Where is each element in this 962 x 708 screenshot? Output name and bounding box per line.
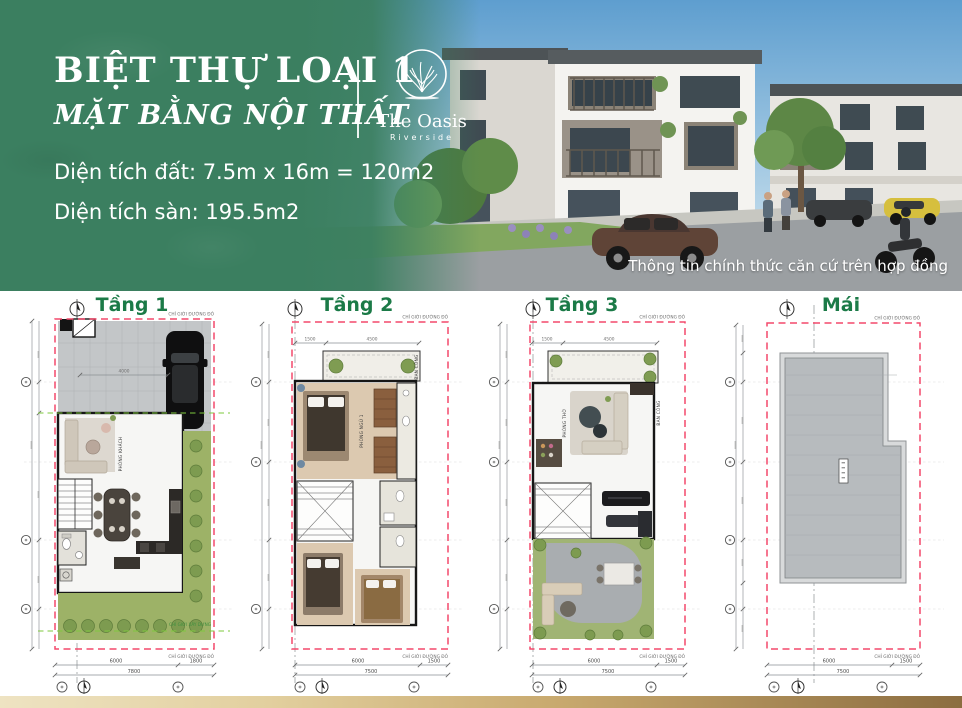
grid-markers-bottom: [769, 682, 887, 692]
svg-text:7500: 7500: [365, 669, 378, 675]
grid-markers-bottom: [295, 682, 419, 692]
roof-slab: [780, 353, 906, 583]
disclaimer-text: Thông tin chính thức căn cứ trên hợp đồn…: [628, 257, 948, 275]
page-title: BIỆT THỰ LOẠI 1: [54, 50, 417, 91]
boundary-label-bottom: CHỈ GIỚI ĐƯỜNG ĐỎ: [874, 652, 920, 660]
svg-text:6000: 6000: [110, 659, 123, 665]
plan-tang-2: Tầng 2: [248, 291, 466, 695]
svg-text:4500: 4500: [367, 337, 378, 343]
top-dimensions: 1500 4500: [530, 337, 659, 346]
top-dimensions: 1500 4500: [293, 337, 421, 346]
bedroom-2: [297, 543, 353, 625]
svg-text:6000: 6000: [588, 659, 601, 665]
stairs: [535, 483, 591, 539]
green-blend-overlay: [300, 0, 700, 291]
svg-text:1500: 1500: [428, 659, 441, 665]
boundary-label-bottom: CHỈ GIỚI ĐƯỜNG ĐỎ: [402, 652, 448, 660]
land-area-text: Diện tích đất: 7.5m x 16m = 120m2: [54, 160, 434, 184]
svg-text:1500: 1500: [542, 337, 553, 343]
house-render-image: [300, 0, 962, 291]
plan-tang-3: Tầng 3: [486, 291, 704, 695]
header-banner: BIỆT THỰ LOẠI 1 MẶT BẰNG NỘI THẤT The Oa…: [0, 0, 962, 291]
plan-title-tang-2: Tầng 2: [297, 294, 417, 316]
left-dimension-lines: [734, 323, 745, 651]
room-label-bedroom1: PHÒNG NGỦ 1: [359, 414, 364, 447]
svg-text:7800: 7800: [128, 669, 141, 675]
plan-title-tang-3: Tầng 3: [522, 294, 642, 316]
grid-markers-left: [489, 377, 498, 613]
stairs: [297, 481, 353, 541]
dining-table: [94, 489, 141, 541]
brand-logo: The Oasis Riverside: [370, 48, 474, 142]
brand-tagline: Riverside: [370, 133, 474, 142]
svg-text:1800: 1800: [190, 659, 203, 665]
page-subtitle: MẶT BẰNG NỘI THẤT: [54, 100, 409, 131]
plan-mai: Mái: [722, 291, 950, 695]
bottom-dimensions: 6000 1500 7500: [530, 659, 687, 678]
room-label-balcony: BAN CÔNG: [414, 354, 419, 379]
svg-text:1500: 1500: [305, 337, 316, 343]
floor-plans-area: Tầng 1: [0, 291, 962, 696]
footer-gold-bar: [0, 696, 962, 708]
living-room: [65, 415, 116, 473]
balcony: [323, 351, 420, 381]
svg-text:7500: 7500: [837, 669, 850, 675]
plan-title-tang-1: Tầng 1: [72, 294, 192, 316]
svg-text:4000: 4000: [119, 369, 130, 375]
grid-markers-left: [21, 377, 30, 613]
boundary-label-bottom: CHỈ GIỚI ĐƯỜNG ĐỎ: [639, 652, 685, 660]
brand-name: The Oasis: [370, 111, 474, 132]
room-label-balcony: BAN CÔNG: [656, 400, 661, 425]
grid-markers-bottom: [533, 682, 656, 692]
terrace-top: [548, 351, 658, 383]
room-label-tho: PHÒNG THỜ: [562, 409, 567, 438]
north-arrow-bottom-icon: [792, 678, 804, 694]
bedroom-1: [297, 383, 397, 479]
bottom-dimensions: 6000 1500 7500: [293, 659, 450, 678]
oasis-tree-icon: [394, 48, 450, 104]
svg-text:1500: 1500: [900, 659, 913, 665]
svg-text:7500: 7500: [602, 669, 615, 675]
svg-text:1500: 1500: [665, 659, 678, 665]
grid-markers-left: [725, 377, 734, 613]
left-dimension-lines: [30, 319, 41, 651]
floor-area-text: Diện tích sàn: 195.5m2: [54, 200, 299, 224]
bedroom-3: [355, 569, 410, 625]
plan-title-mai: Mái: [781, 294, 901, 316]
svg-text:4500: 4500: [604, 337, 615, 343]
roof-terrace: [533, 537, 654, 640]
north-arrow-bottom-icon: [554, 678, 566, 694]
left-dimension-lines: [498, 322, 509, 651]
room-label-living: PHÒNG KHÁCH: [118, 437, 123, 472]
boundary-label-top: CHỈ GIỚI ĐƯỜNG ĐỎ: [639, 313, 685, 321]
brochure-page: BIỆT THỰ LOẠI 1 MẶT BẰNG NỘI THẤT The Oa…: [0, 0, 962, 708]
left-dimension-lines: [260, 322, 271, 651]
grid-markers-left: [251, 377, 260, 613]
title-divider: [357, 60, 359, 138]
svg-text:6000: 6000: [823, 659, 836, 665]
svg-text:6000: 6000: [352, 659, 365, 665]
bathroom: [58, 531, 86, 565]
north-arrow-bottom-icon: [316, 678, 328, 694]
grid-markers-bottom: [57, 682, 183, 692]
build-limit-label: CHỈ GIỚI XÂY DỰNG: [169, 622, 211, 627]
plan-tang-1: Tầng 1: [18, 291, 240, 695]
stairs: [58, 479, 92, 529]
bottom-dimensions: 6000 1500 7500: [765, 659, 922, 678]
north-arrow-bottom-icon: [78, 678, 90, 694]
